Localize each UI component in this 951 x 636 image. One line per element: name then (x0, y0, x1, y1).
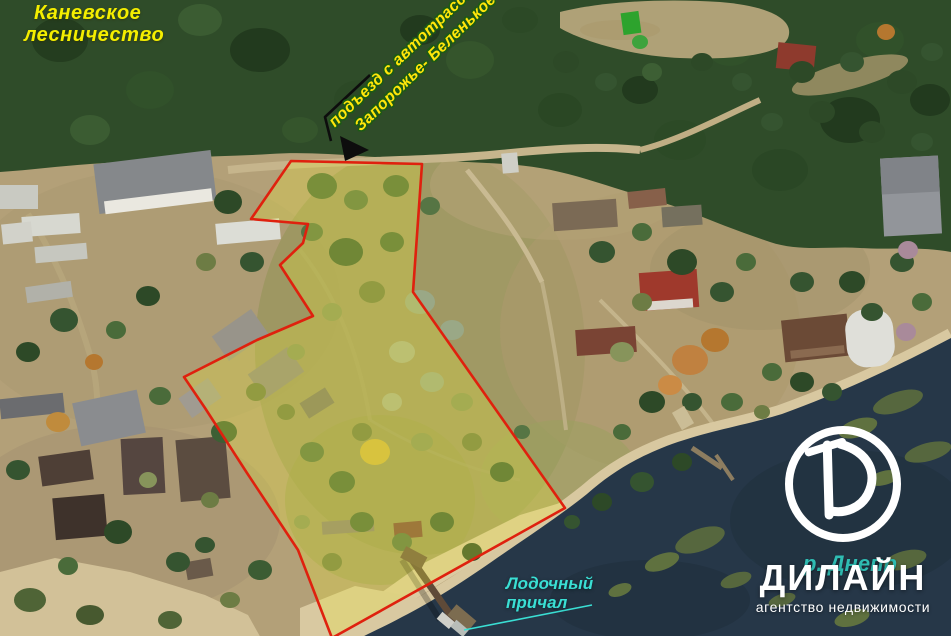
agency-watermark: ДИЛАЙН агентство недвижимости (746, 414, 940, 615)
agency-name: ДИЛАЙН (746, 560, 940, 596)
boat-dock-label-line1: Лодочный (506, 575, 593, 594)
listing-image: Каневское лесничество подъезд с автотрас… (0, 0, 951, 636)
boat-dock-label-line2: причал (506, 594, 593, 613)
boat-dock-label: Лодочный причал (506, 575, 593, 612)
forestry-label-line1: Каневское (24, 2, 164, 24)
forestry-label-line2: лесничество (24, 24, 164, 46)
forestry-label: Каневское лесничество (24, 2, 164, 46)
agency-tagline: агентство недвижимости (746, 599, 940, 615)
agency-logo (773, 414, 913, 554)
brush-d-mark (808, 440, 874, 516)
